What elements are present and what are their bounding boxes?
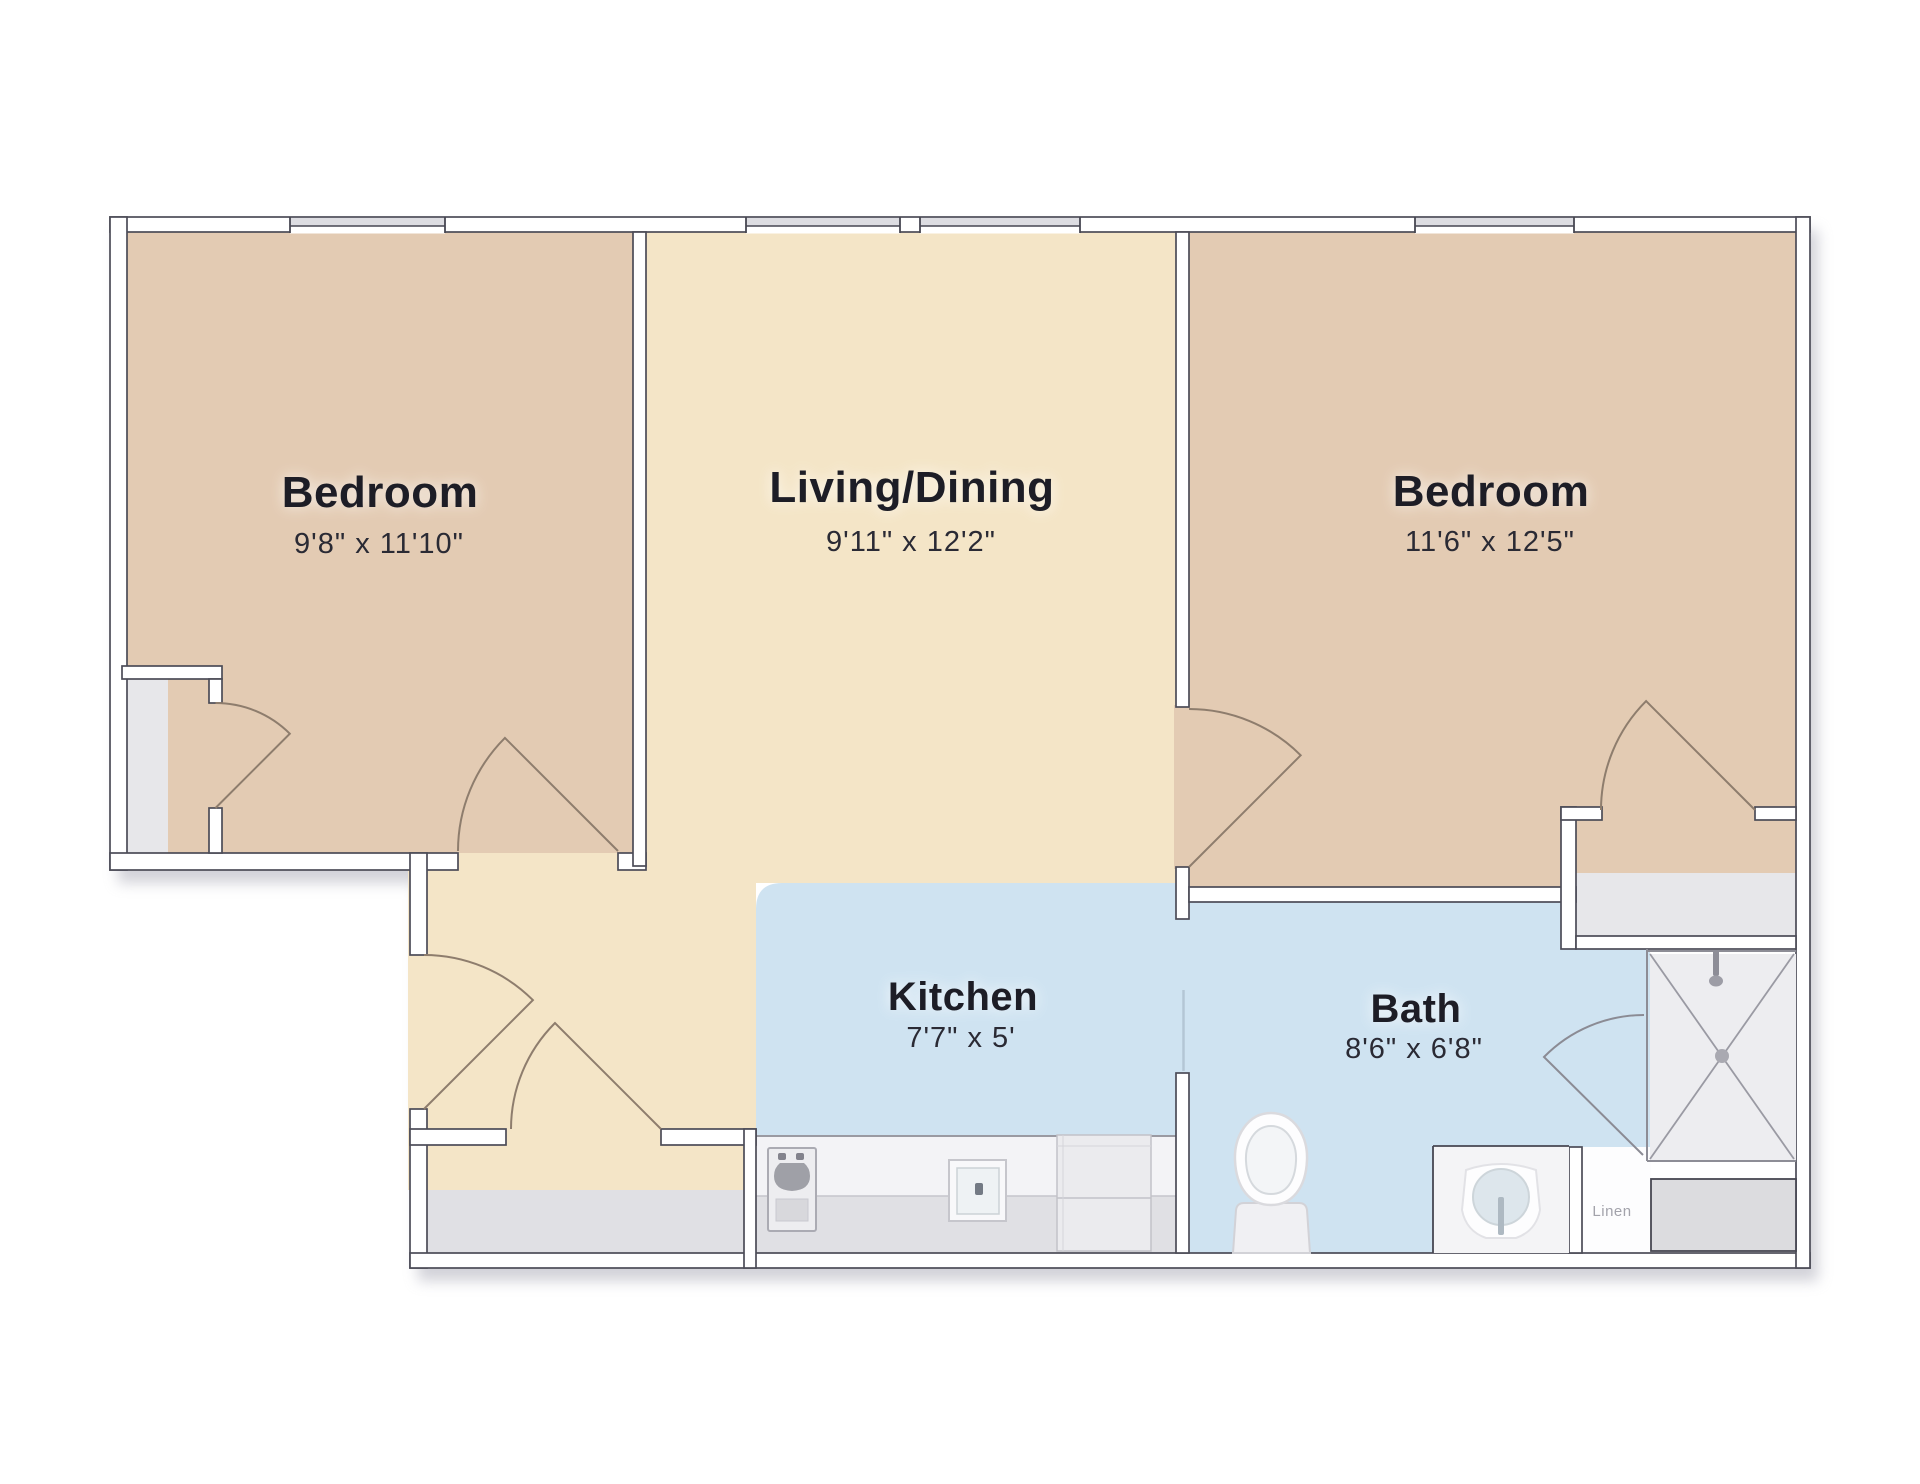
svg-text:11'6" x 12'5": 11'6" x 12'5"	[1405, 526, 1575, 558]
svg-text:Kitchen: Kitchen	[888, 975, 1038, 1019]
svg-text:Living/Dining: Living/Dining	[769, 463, 1054, 512]
svg-text:Bedroom: Bedroom	[282, 468, 479, 517]
svg-text:9'8" x 11'10": 9'8" x 11'10"	[294, 528, 464, 560]
svg-text:8'6" x 6'8": 8'6" x 6'8"	[1345, 1033, 1483, 1065]
svg-text:9'11" x 12'2": 9'11" x 12'2"	[826, 526, 996, 558]
svg-text:Linen: Linen	[1592, 1203, 1631, 1220]
svg-text:Bedroom: Bedroom	[1393, 467, 1590, 516]
svg-text:Bath: Bath	[1371, 987, 1462, 1031]
svg-text:7'7" x 5': 7'7" x 5'	[906, 1022, 1015, 1054]
